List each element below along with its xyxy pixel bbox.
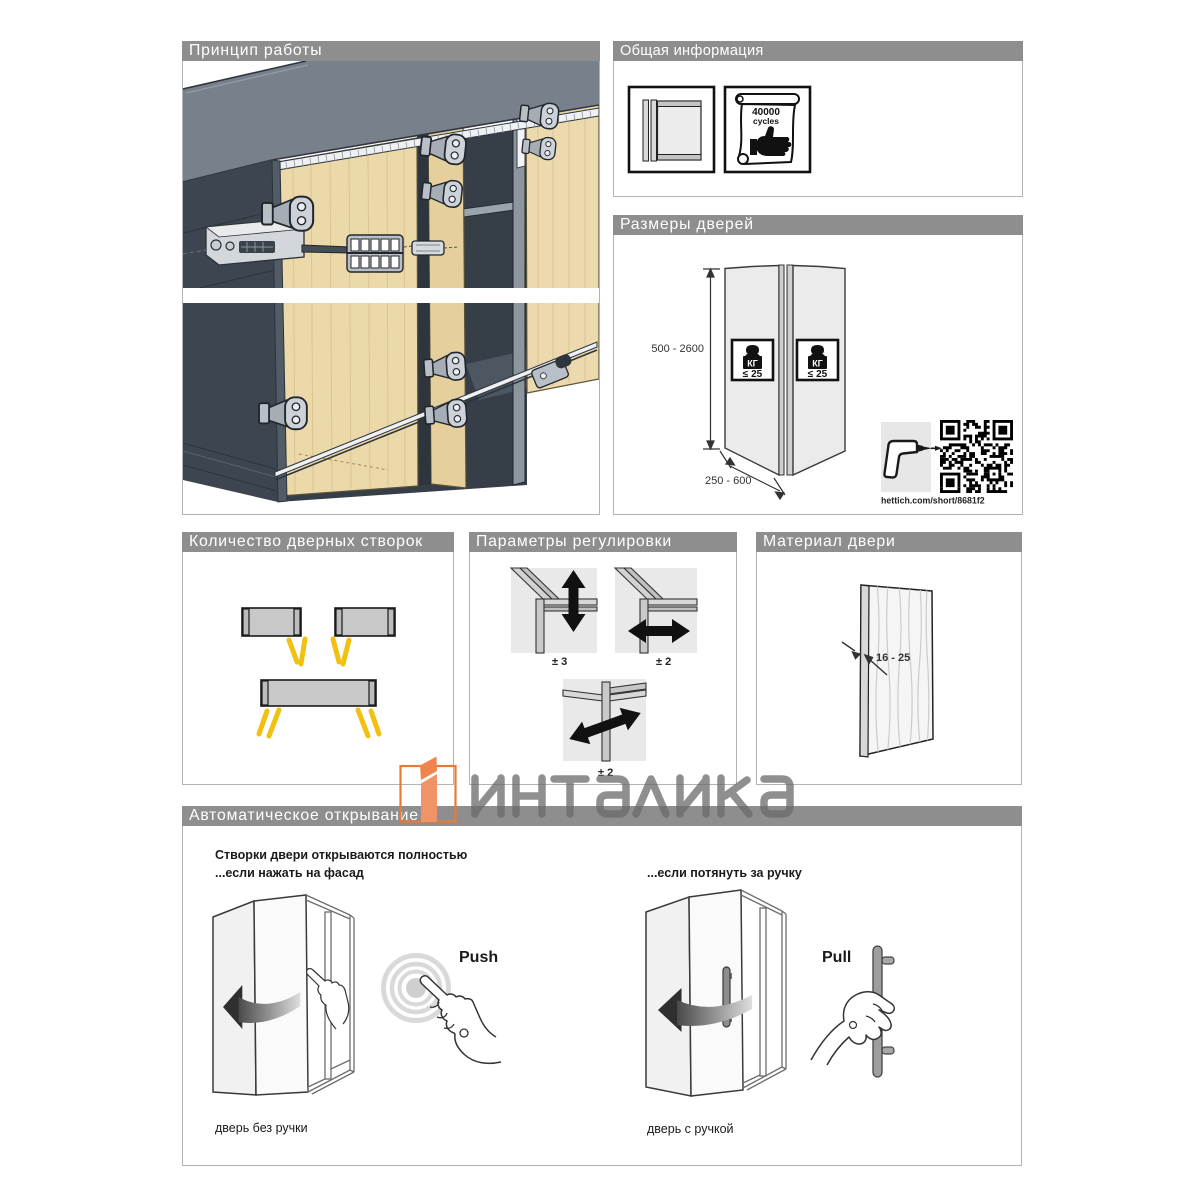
svg-text:± 2: ± 2 bbox=[656, 656, 671, 668]
svg-text:250 - 600: 250 - 600 bbox=[705, 475, 751, 487]
svg-text:Push: Push bbox=[459, 949, 498, 966]
svg-text:hettich.com/short/8681f2: hettich.com/short/8681f2 bbox=[881, 496, 985, 506]
svg-text:дверь без ручки: дверь без ручки bbox=[215, 1121, 308, 1135]
svg-text:Створки двери открываются полн: Створки двери открываются полностью bbox=[215, 848, 468, 862]
svg-text:Pull: Pull bbox=[822, 949, 851, 966]
svg-text:16 - 25: 16 - 25 bbox=[876, 652, 910, 664]
svg-text:≤ 25: ≤ 25 bbox=[808, 369, 828, 380]
svg-text:500 - 2600: 500 - 2600 bbox=[651, 343, 704, 355]
svg-text:...если нажать на фасад: ...если нажать на фасад bbox=[215, 866, 364, 880]
svg-text:cycles: cycles bbox=[753, 116, 779, 126]
svg-text:...если потянуть за ручку: ...если потянуть за ручку bbox=[647, 866, 802, 880]
svg-text:КГ: КГ bbox=[747, 359, 758, 369]
svg-text:КГ: КГ bbox=[812, 359, 823, 369]
svg-text:≤ 25: ≤ 25 bbox=[743, 369, 763, 380]
svg-text:дверь с ручкой: дверь с ручкой bbox=[647, 1122, 734, 1136]
svg-text:± 3: ± 3 bbox=[552, 656, 567, 668]
